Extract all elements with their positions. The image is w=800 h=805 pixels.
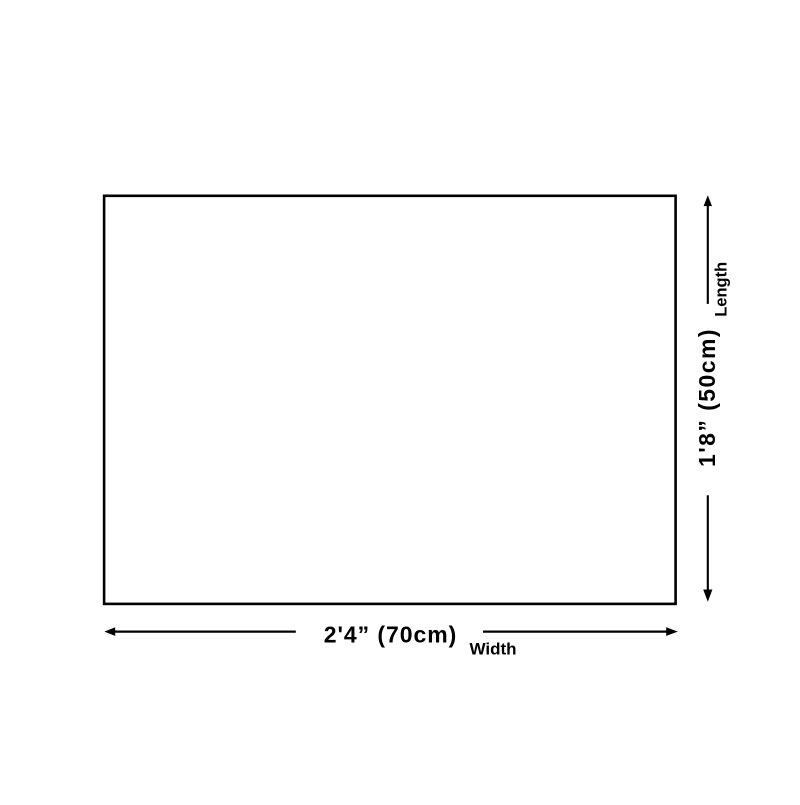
svg-text:2'4” (70cm): 2'4” (70cm)	[324, 621, 458, 647]
svg-text:Length: Length	[713, 262, 731, 317]
svg-text:1'8” (50cm): 1'8” (50cm)	[694, 328, 720, 467]
svg-text:Width: Width	[470, 639, 517, 658]
